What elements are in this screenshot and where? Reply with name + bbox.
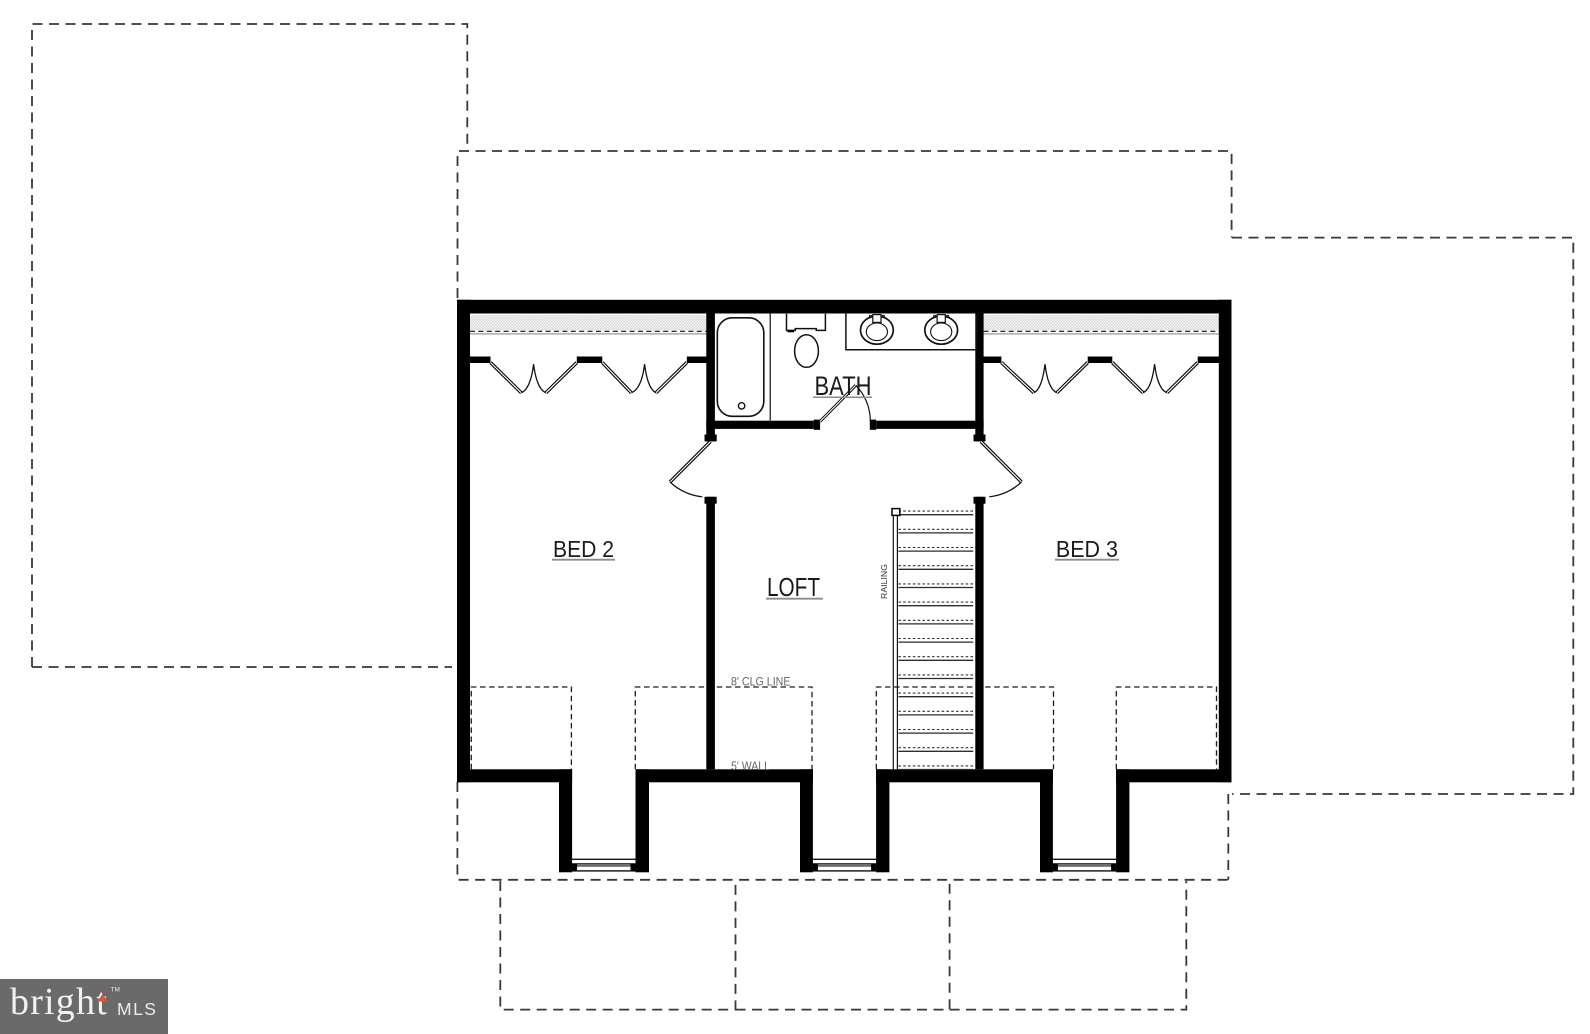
svg-text:BATH: BATH [815,371,872,401]
svg-text:RAILING: RAILING [879,564,889,599]
svg-text:LOFT: LOFT [767,572,820,602]
svg-text:MLS: MLS [117,999,157,1019]
svg-text:BED 3: BED 3 [1056,536,1118,562]
svg-text:bright: bright [10,981,108,1023]
svg-text:TM: TM [111,987,120,994]
svg-text:5' WALL: 5' WALL [731,761,771,773]
svg-text:8' CLG LINE: 8' CLG LINE [731,677,791,689]
svg-text:BED 2: BED 2 [553,536,614,562]
